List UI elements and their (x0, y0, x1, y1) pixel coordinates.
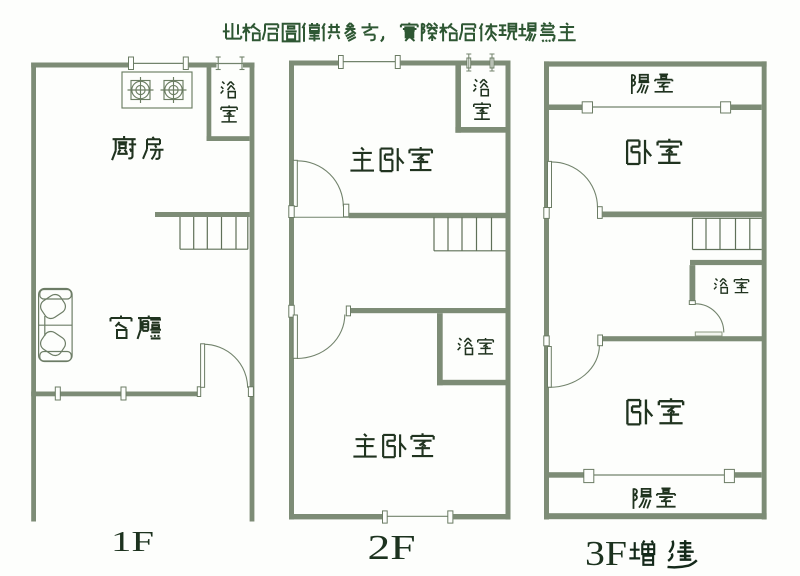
svg-text:1F: 1F (111, 526, 154, 558)
svg-text:3F: 3F (585, 534, 627, 573)
svg-text:2F: 2F (368, 528, 416, 567)
